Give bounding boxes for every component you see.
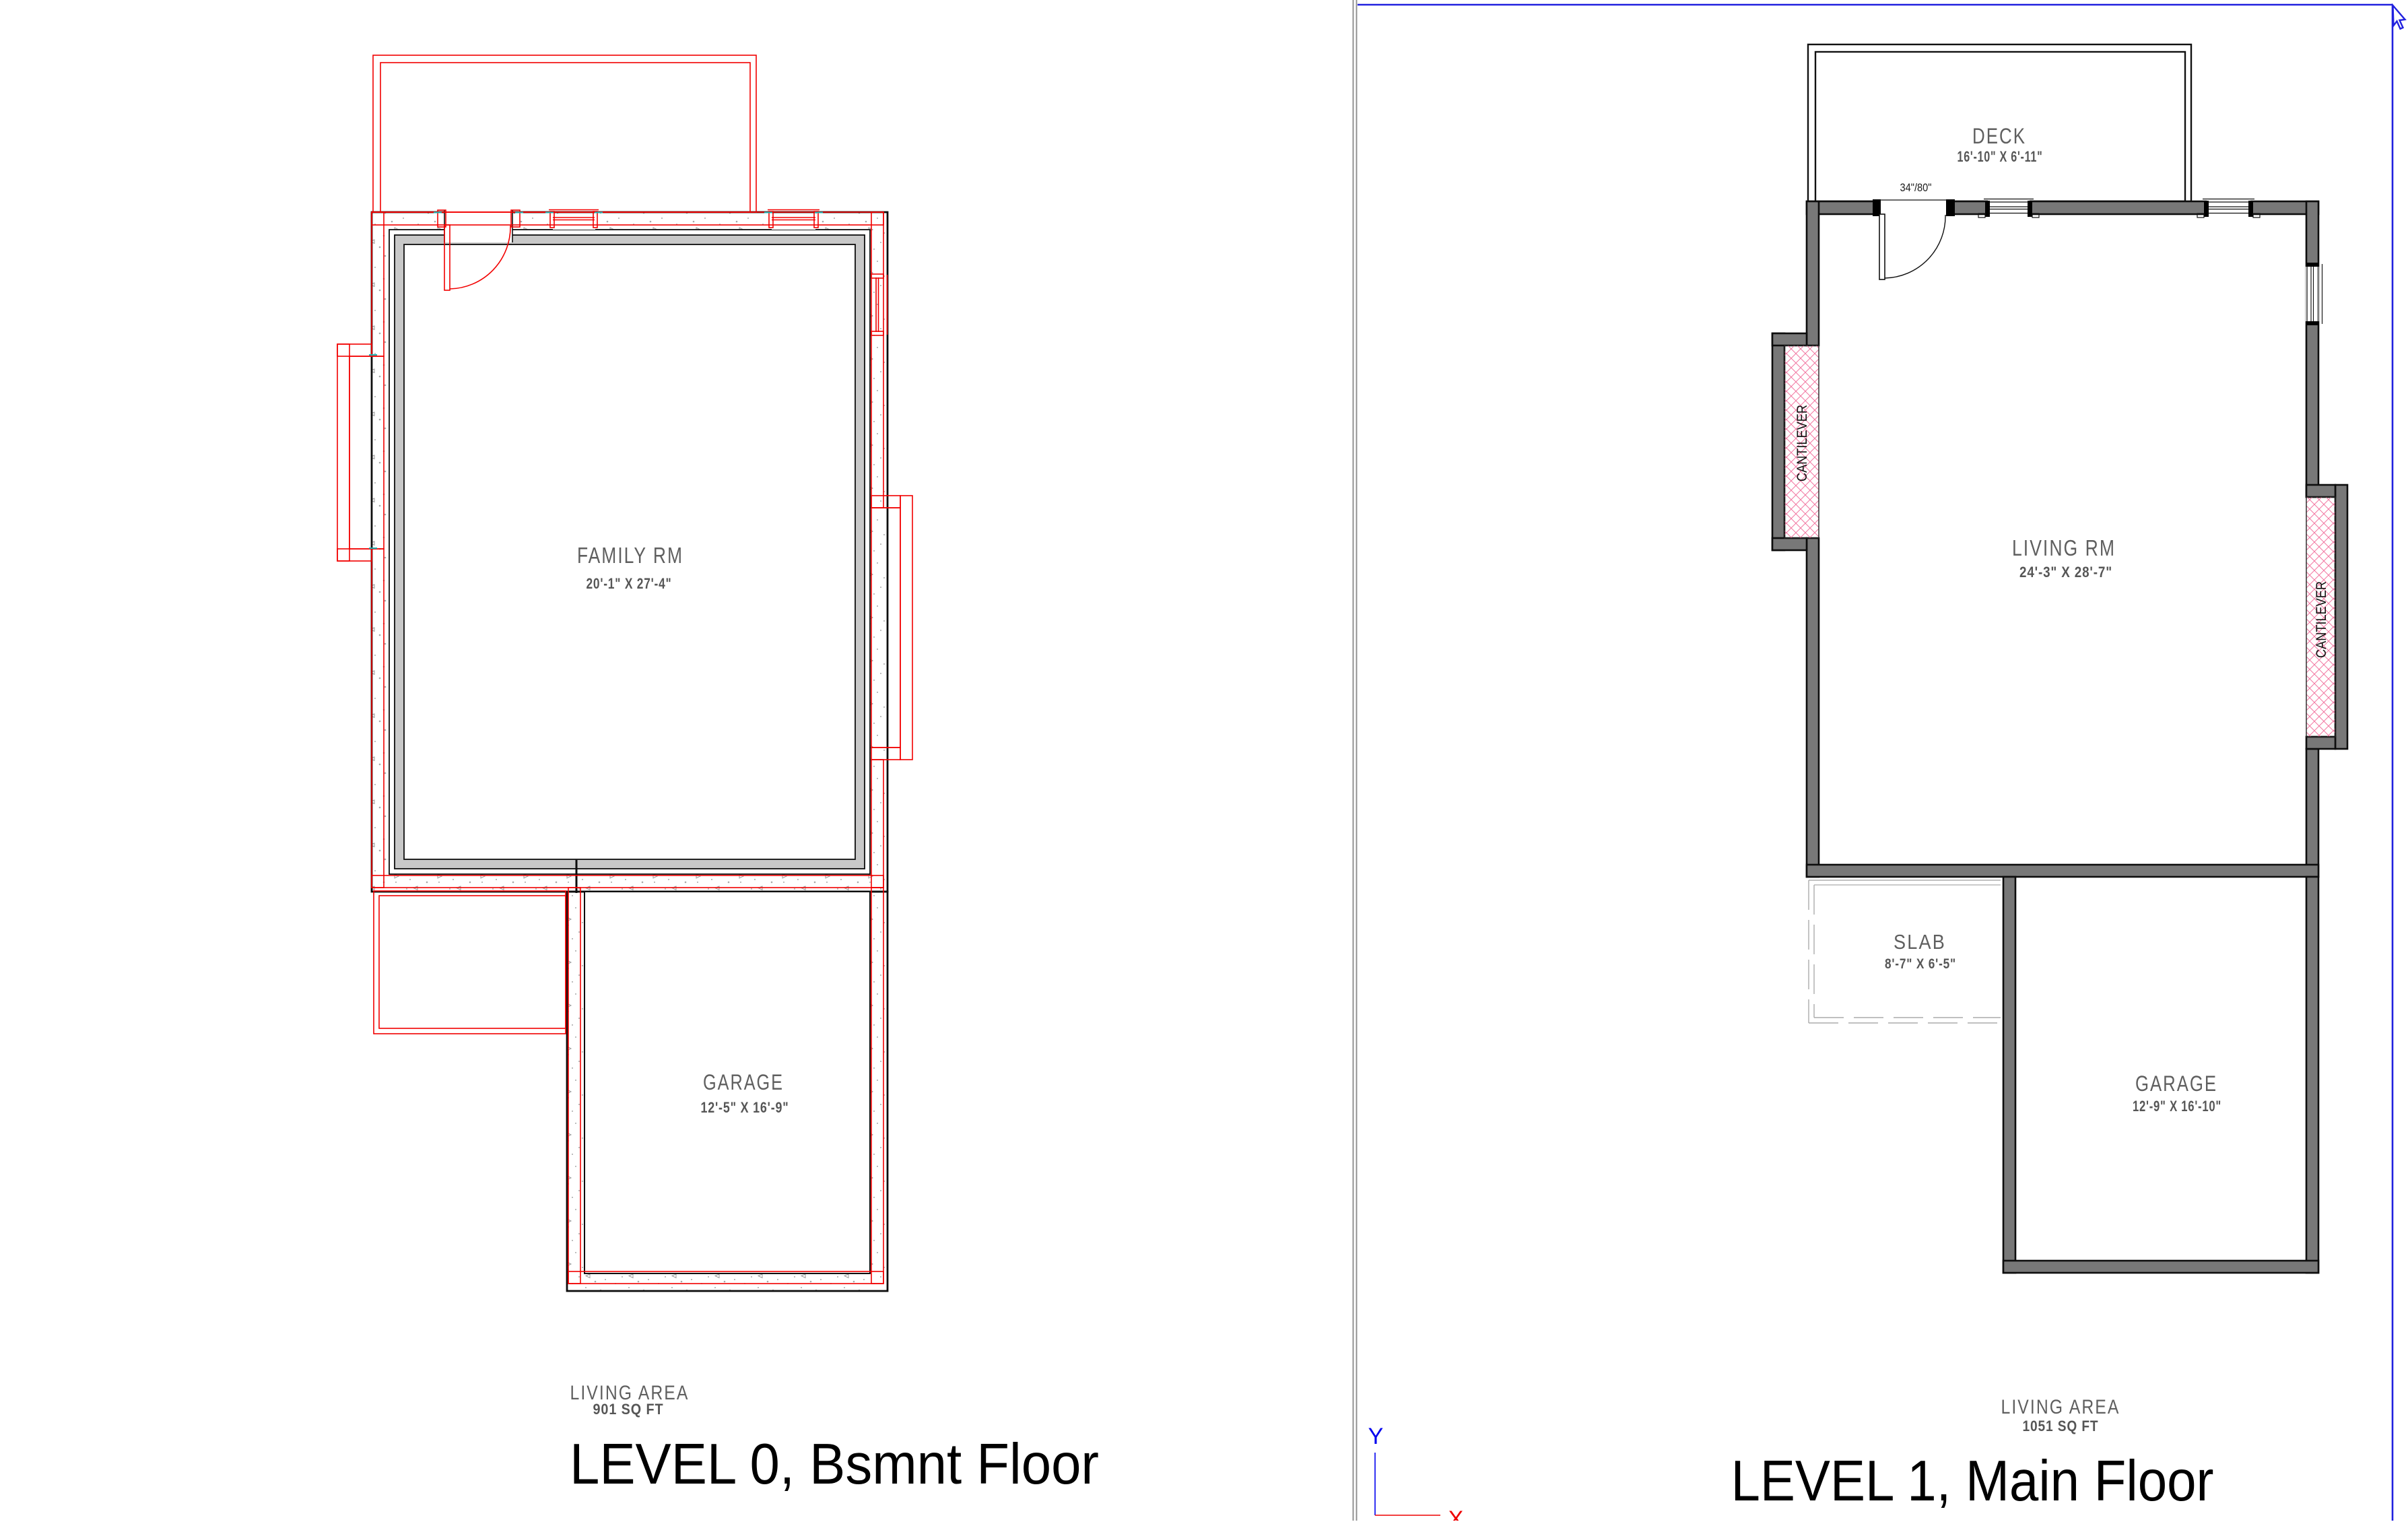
svg-text:FAMILY RM: FAMILY RM xyxy=(577,543,683,568)
svg-text:12'-5" X 16'-9": 12'-5" X 16'-9" xyxy=(701,1099,789,1116)
svg-text:LEVEL 0, Bsmnt Floor: LEVEL 0, Bsmnt Floor xyxy=(570,1432,1099,1496)
svg-text:1051 SQ FT: 1051 SQ FT xyxy=(2023,1418,2099,1434)
svg-text:LIVING RM: LIVING RM xyxy=(2012,535,2116,560)
svg-text:GARAGE: GARAGE xyxy=(703,1070,784,1094)
svg-text:12'-9" X 16'-10": 12'-9" X 16'-10" xyxy=(2133,1098,2221,1115)
svg-text:34"/80": 34"/80" xyxy=(1900,181,1932,194)
svg-text:24'-3" X 28'-7": 24'-3" X 28'-7" xyxy=(2019,564,2112,581)
svg-text:CANTILEVER: CANTILEVER xyxy=(1795,405,1810,482)
svg-text:20'-1" X 27'-4": 20'-1" X 27'-4" xyxy=(587,575,672,592)
svg-text:16'-10" X 6'-11": 16'-10" X 6'-11" xyxy=(1958,148,2043,165)
svg-text:LEVEL 1, Main Floor: LEVEL 1, Main Floor xyxy=(1731,1449,2214,1513)
svg-text:GARAGE: GARAGE xyxy=(2135,1071,2217,1096)
svg-text:CANTILEVER: CANTILEVER xyxy=(2314,581,2329,658)
svg-text:SLAB: SLAB xyxy=(1894,930,1946,954)
svg-text:X: X xyxy=(1448,1506,1464,1521)
svg-text:LIVING AREA: LIVING AREA xyxy=(2001,1396,2120,1418)
svg-text:8'-7" X 6'-5": 8'-7" X 6'-5" xyxy=(1885,956,1956,972)
svg-text:Y: Y xyxy=(1368,1424,1384,1449)
svg-text:901 SQ FT: 901 SQ FT xyxy=(593,1401,664,1418)
svg-text:DECK: DECK xyxy=(1972,124,2026,148)
